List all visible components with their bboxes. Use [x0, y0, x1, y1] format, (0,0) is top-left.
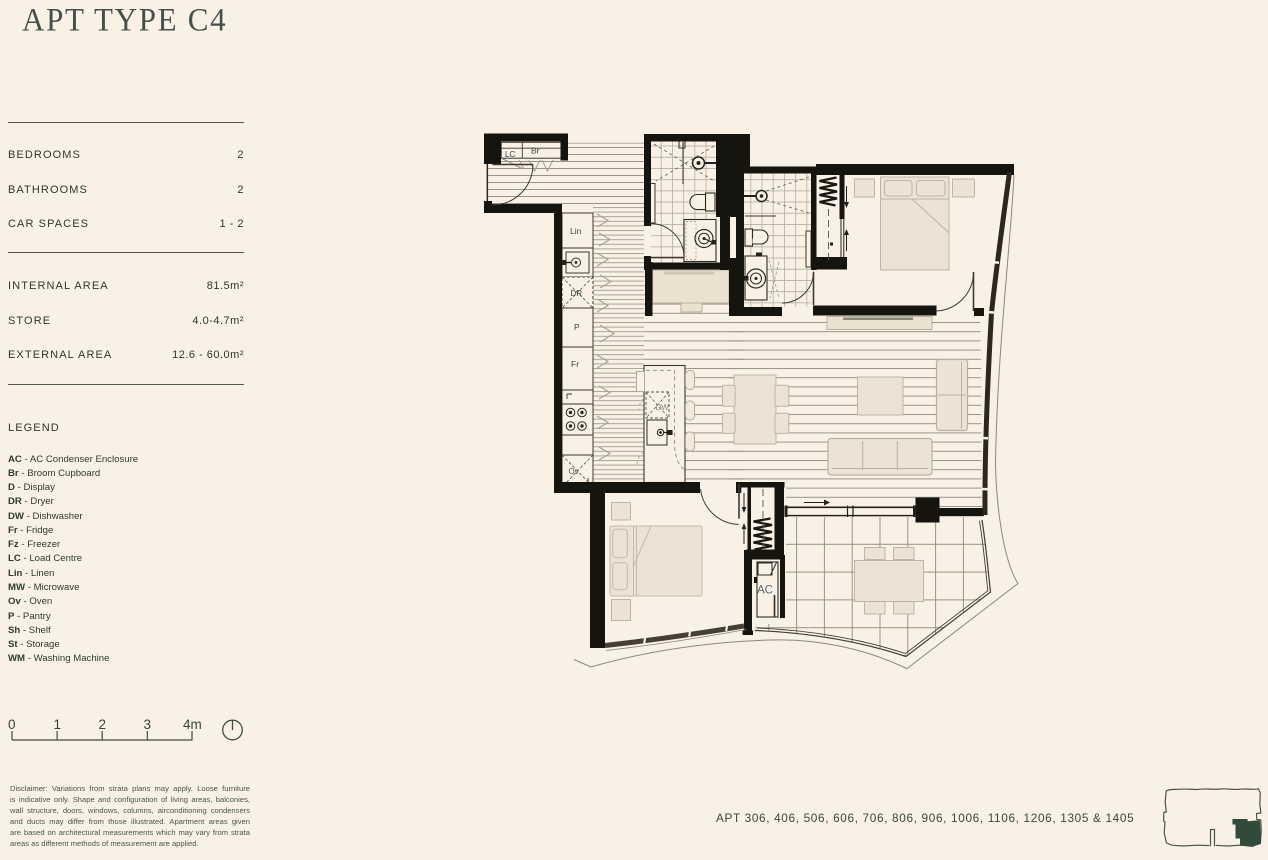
svg-text:Ov: Ov [569, 467, 579, 476]
svg-text:0: 0 [8, 717, 16, 732]
svg-text:1: 1 [54, 717, 62, 732]
svg-text:AC: AC [757, 585, 773, 597]
svg-text:LC: LC [505, 150, 515, 159]
svg-text:DR: DR [571, 289, 583, 298]
svg-text:3: 3 [144, 717, 152, 732]
svg-text:Lin: Lin [570, 226, 582, 236]
svg-text:DW: DW [656, 403, 670, 412]
svg-text:Br: Br [531, 146, 540, 156]
svg-text:P: P [574, 322, 580, 332]
svg-text:Fr: Fr [571, 359, 579, 369]
svg-text:2: 2 [99, 717, 107, 732]
svg-text:4m: 4m [183, 717, 202, 732]
